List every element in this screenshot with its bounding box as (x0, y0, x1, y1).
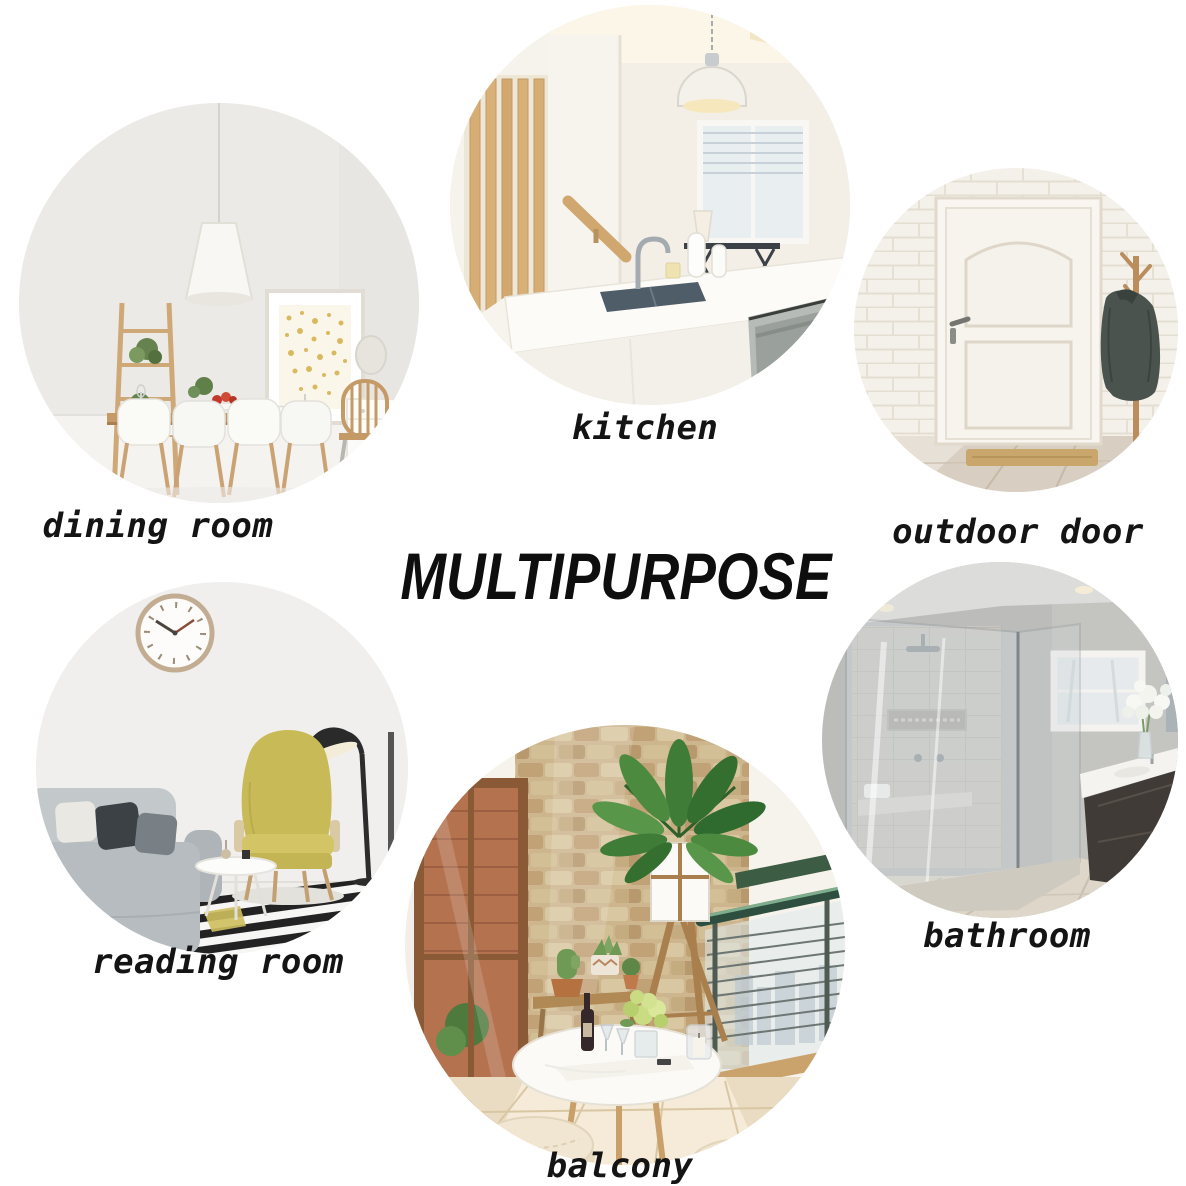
pedestal (1160, 410, 1176, 462)
product-collage: MULTIPURPOSE dining room kitchen outdoor… (0, 0, 1186, 1186)
outdoor-door-photo (854, 168, 1178, 492)
dining-room-photo (19, 103, 419, 503)
balcony-photo (405, 725, 845, 1165)
page-title: MULTIPURPOSE (400, 538, 831, 614)
kitchen-photo (450, 5, 850, 405)
label-dining-room: dining room (43, 506, 274, 546)
front-door (936, 198, 1101, 444)
mirror-edge (1166, 620, 1178, 732)
label-bathroom: bathroom (923, 916, 1091, 956)
window (700, 123, 806, 241)
wall-clock (138, 596, 212, 670)
jacket (1101, 289, 1160, 401)
glass-door (405, 775, 523, 1125)
reading-room-photo (36, 582, 408, 954)
bathroom-photo (822, 562, 1178, 918)
stair-slats (464, 75, 550, 323)
label-kitchen: kitchen (572, 408, 719, 448)
label-balcony: balcony (547, 1146, 694, 1186)
label-reading-room: reading room (92, 942, 344, 982)
shower-enclosure (846, 618, 1080, 918)
label-outdoor-door: outdoor door (892, 512, 1144, 552)
